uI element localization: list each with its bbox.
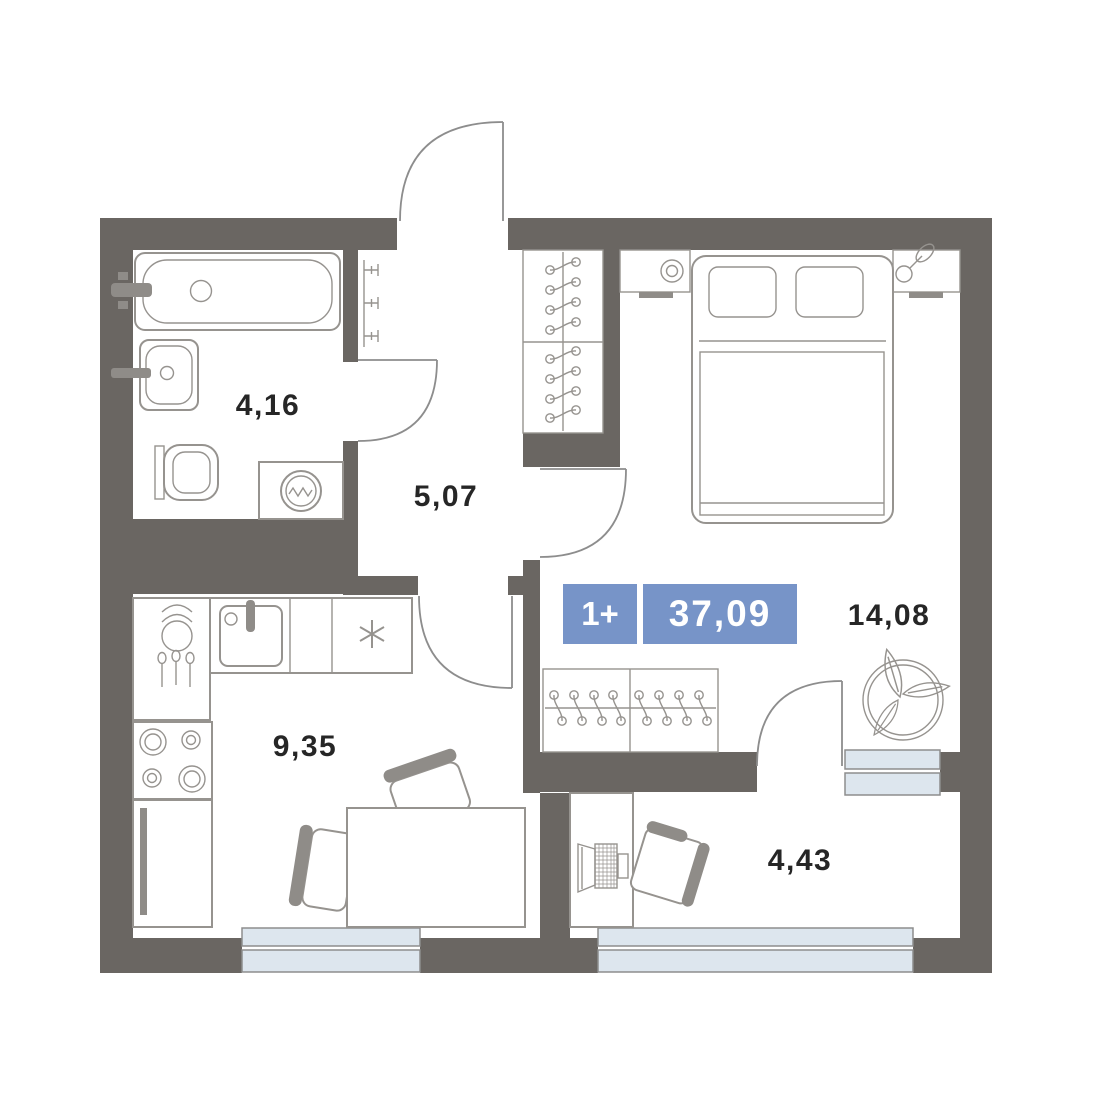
room-area-kitchen: 9,35 — [273, 730, 337, 764]
towel-radiator-icon — [364, 260, 378, 347]
cooktop-asterisk-icon — [360, 620, 384, 648]
bathtub-icon — [111, 253, 340, 330]
room-area-bathroom: 4,16 — [236, 389, 300, 423]
dishes-icon — [162, 605, 192, 651]
room-area-bedroom: 14,08 — [848, 599, 931, 633]
wardrobe-hangers-icon — [523, 250, 603, 433]
kitchen-sink-icon — [220, 600, 282, 666]
balcony-door-icon — [757, 681, 842, 766]
plant-pot-icon — [863, 648, 950, 740]
apartment-type-badge: 1+ 37,09 — [563, 584, 797, 644]
kitchen-window-icon — [242, 928, 420, 972]
bedroom-door-icon — [540, 469, 626, 557]
pillow-icon — [796, 267, 863, 317]
chair-icon — [628, 820, 713, 908]
kitchen-door-icon — [419, 596, 512, 688]
toilet-icon — [155, 445, 218, 500]
fridge-icon — [133, 800, 212, 927]
room-area-hallway: 5,07 — [414, 480, 478, 514]
stove-icon — [133, 722, 212, 799]
kitchen-counter — [133, 598, 412, 720]
balcony-window-icon — [598, 928, 913, 972]
entrance-door-icon — [400, 122, 503, 221]
dining-table-icon — [347, 808, 525, 927]
bed-icon — [692, 256, 893, 523]
bathroom-door-icon — [358, 360, 437, 441]
floor-plan-drawing — [0, 0, 1096, 1096]
pillow-icon — [709, 267, 776, 317]
nightstand — [893, 241, 960, 298]
nightstand — [620, 250, 690, 298]
floor-plan: 4,16 5,07 9,35 14,08 4,43 1+ 37,09 — [0, 0, 1096, 1096]
lamp-icon — [661, 260, 683, 282]
wardrobe-hangers-icon — [543, 669, 718, 752]
cutlery-icon — [158, 651, 194, 688]
room-area-balcony: 4,43 — [768, 844, 832, 878]
bedroom-balcony-window-icon — [845, 750, 940, 795]
badge-total-area: 37,09 — [643, 584, 797, 644]
washing-machine-icon — [259, 462, 343, 519]
badge-rooms-count: 1+ — [563, 584, 637, 644]
